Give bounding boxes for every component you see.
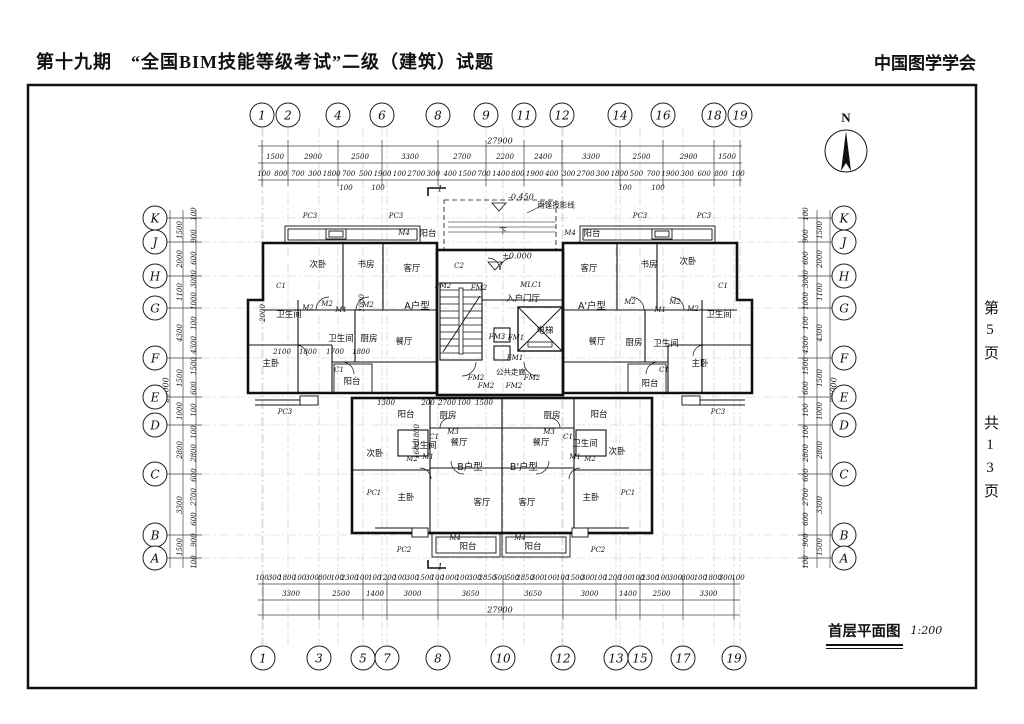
room-label: 次卧 — [309, 258, 326, 270]
component-tag-M4: M4 — [398, 229, 410, 237]
dimension-interior: 1500 — [475, 399, 493, 407]
dimension-bottom-minor: 500 — [493, 574, 506, 582]
grid-bubble-bottom-3: 3 — [307, 646, 332, 671]
dimension-left-major: 4300 — [176, 324, 184, 342]
grid-bubble-top-14: 14 — [608, 103, 633, 128]
room-label: 餐厅 — [395, 335, 412, 347]
dimension-top-minor: 1900 — [661, 170, 679, 178]
component-tag-C2: C2 — [454, 262, 464, 270]
dimension-left-major: 1500 — [176, 369, 184, 387]
component-tag-M3: M3 — [543, 428, 555, 436]
dimension-bottom-major: 1400 — [366, 590, 384, 598]
dimension-bottom-minor: 300 — [305, 574, 318, 582]
room-label: 客厅 — [403, 262, 420, 274]
component-tag-M2: M2 — [321, 300, 333, 308]
dimension-bottom-minor: 100 — [393, 574, 406, 582]
grid-bubble-right-A: A — [832, 546, 857, 571]
dimension-top-major: 2900 — [304, 153, 322, 161]
component-tag-PC3: PC3 — [389, 212, 404, 220]
north-arrow-icon — [825, 130, 867, 172]
dimension-bottom-minor: 800 — [681, 574, 694, 582]
dimension-right-major: 2000 — [816, 250, 824, 268]
dimension-bottom-minor: 300 — [669, 574, 682, 582]
dimension-top-minor: 2700 — [407, 170, 425, 178]
grid-bubble-bottom-15: 15 — [628, 646, 653, 671]
dimension-right-minor: 2700 — [802, 488, 810, 506]
title-block: 首层平面图 1:200 — [826, 620, 942, 646]
component-tag-PC1: PC1 — [367, 489, 382, 497]
component-tag-C1: C1 — [563, 433, 573, 441]
dimension-left-minor: 2800 — [190, 444, 198, 462]
dimension-interior: 1300 — [377, 399, 395, 407]
stairs-icon — [440, 283, 482, 360]
grid-bubble-left-A: A — [143, 546, 168, 571]
dimension-interior: 1800 — [352, 348, 370, 356]
component-tag-PC1: PC1 — [621, 489, 636, 497]
grid-bubble-left-D: D — [143, 413, 168, 438]
dimension-left-minor: 3000 — [190, 270, 198, 288]
dimension-top-minor: 1800 — [323, 170, 341, 178]
grid-bubble-left-K: K — [143, 206, 168, 231]
dimension-right-major: 1500 — [816, 369, 824, 387]
room-label: 客厅 — [473, 496, 490, 508]
dimension-left-minor: 600 — [190, 251, 198, 264]
dimension-bottom-minor: 300 — [581, 574, 594, 582]
dimension-top-minor: 700 — [477, 170, 490, 178]
room-label: 入户门厅 — [506, 292, 540, 304]
component-tag-M3: M3 — [447, 428, 459, 436]
dimension-bottom-minor: 100 — [456, 574, 469, 582]
component-tag-M2: M2 — [624, 298, 636, 306]
grid-bubble-bottom-12: 12 — [551, 646, 576, 671]
dimension-right-minor: 600 — [802, 512, 810, 525]
dimension-top-minor: 400 — [444, 170, 457, 178]
dimension-bottom-major: 3650 — [524, 590, 542, 598]
grid-bubble-top-2: 2 — [276, 103, 301, 128]
dimension-top-major: 3300 — [582, 153, 600, 161]
room-label: 书房 — [357, 258, 374, 270]
level-mark: -0.450 — [508, 193, 534, 202]
room-label: 次卧 — [608, 445, 625, 457]
room-label: 阳台 — [397, 408, 414, 420]
dimension-top-minor: 700 — [291, 170, 304, 178]
component-tag-M1: M1 — [422, 453, 434, 461]
dimension-top-minor: 100 — [393, 170, 406, 178]
dimension-left-major: 1100 — [176, 283, 184, 301]
dimension-top-sub: 100 — [371, 184, 384, 192]
plan-title: 首层平面图 — [826, 620, 903, 646]
room-label: 阳台 — [343, 375, 360, 387]
dimension-bottom-minor: 100 — [619, 574, 632, 582]
component-tag-FM2: FM2 — [435, 282, 451, 290]
page-number-current: 第5页 — [980, 300, 1001, 367]
grid-bubble-right-D: D — [832, 413, 857, 438]
dimension-top-minor: 100 — [731, 170, 744, 178]
dimension-top-minor: 700 — [647, 170, 660, 178]
dimension-top-major: 2900 — [680, 153, 698, 161]
dimension-left-minor: 1500 — [190, 357, 198, 375]
dimension-right-minor: 600 — [802, 468, 810, 481]
component-tag-M2: M2 — [584, 455, 596, 463]
dimension-bottom-major: 3000 — [581, 590, 599, 598]
dimension-bottom-minor: 100 — [356, 574, 369, 582]
component-tag-FM2: FM2 — [478, 382, 494, 390]
dimension-top-minor: 600 — [697, 170, 710, 178]
room-label: 电梯 — [536, 324, 553, 336]
dimension-interior: 100 — [457, 399, 470, 407]
dimension-interior: 1700 — [326, 348, 344, 356]
dimension-right-minor: 900 — [802, 534, 810, 547]
grid-bubble-right-G: G — [832, 296, 857, 321]
component-tag-M2: M2 — [406, 455, 418, 463]
dimension-right-major: 1000 — [816, 402, 824, 420]
grid-bubble-bottom-5: 5 — [351, 646, 376, 671]
dimension-top-minor: 400 — [545, 170, 558, 178]
dimension-bottom-major: 3650 — [462, 590, 480, 598]
dimension-bottom-minor: 100 — [656, 574, 669, 582]
dimension-top-major: 2400 — [534, 153, 552, 161]
room-label: 主卧 — [397, 491, 414, 503]
component-tag-M4: M4 — [514, 534, 526, 542]
room-label: 主卧 — [262, 357, 279, 369]
grid-bubble-bottom-7: 7 — [375, 646, 400, 671]
dimension-bottom-minor: 100 — [255, 574, 268, 582]
room-label: 阳台 — [419, 227, 436, 239]
grid-bubble-right-J: J — [832, 230, 857, 255]
dimension-top-major: 2700 — [453, 153, 471, 161]
section-mark-number: 1 — [437, 563, 442, 572]
dimension-left-major: 2800 — [176, 441, 184, 459]
grid-bubble-bottom-13: 13 — [604, 646, 629, 671]
dimension-right-major: 3300 — [816, 496, 824, 514]
dimension-left-minor: 600 — [190, 512, 198, 525]
dimension-top-major: 2200 — [496, 153, 514, 161]
grid-bubble-top-11: 11 — [512, 103, 537, 128]
component-tag-C1: C1 — [718, 282, 728, 290]
dimension-right-minor: 900 — [802, 229, 810, 242]
component-tag-PC3: PC3 — [711, 408, 726, 416]
grid-bubble-top-1: 1 — [250, 103, 275, 128]
dimension-right-major: 1500 — [816, 538, 824, 556]
grid-bubble-bottom-8: 8 — [426, 646, 451, 671]
component-tag-C1: C1 — [429, 433, 439, 441]
component-tag-PC3: PC3 — [303, 212, 318, 220]
dimension-interior: 1800 — [299, 348, 317, 356]
room-label: 厨房 — [360, 332, 377, 344]
dimension-bottom-minor: 100 — [293, 574, 306, 582]
dimension-left-major: 1500 — [176, 221, 184, 239]
dimension-left-minor: 600 — [190, 381, 198, 394]
dimension-interior: 2100 — [273, 348, 291, 356]
grid-bubble-right-B: B — [832, 523, 857, 548]
room-label: 卫生间 — [572, 437, 598, 449]
grid-bubble-left-C: C — [143, 462, 168, 487]
dimension-top-minor: 300 — [427, 170, 440, 178]
dimension-left-major: 1000 — [176, 402, 184, 420]
grid-bubble-left-E: E — [143, 385, 168, 410]
component-tag-FM2: FM2 — [468, 374, 484, 382]
room-label: 主卧 — [691, 357, 708, 369]
unit-type-label: A户型 — [404, 298, 430, 312]
dimension-right-minor: 100 — [802, 555, 810, 568]
dimension-bottom-major: 2500 — [332, 590, 350, 598]
grid-bubble-right-C: C — [832, 462, 857, 487]
grid-bubble-right-H: H — [832, 264, 857, 289]
grid-bubble-bottom-10: 10 — [491, 646, 516, 671]
component-tag-M1: M1 — [335, 306, 347, 314]
component-tag-PC2: PC2 — [397, 546, 412, 554]
dimension-left-minor: 2700 — [190, 488, 198, 506]
grid-bubble-left-G: G — [143, 296, 168, 321]
dimension-right-major: 1100 — [816, 283, 824, 301]
grid-bubble-top-4: 4 — [326, 103, 351, 128]
dimension-interior: 200 — [421, 399, 434, 407]
component-tag-M1: M1 — [654, 306, 666, 314]
room-label: 阳台 — [524, 540, 541, 552]
plan-scale: 1:200 — [911, 620, 943, 637]
component-tag-FM2: FM2 — [506, 382, 522, 390]
dimension-left-minor: 900 — [190, 534, 198, 547]
grid-bubble-left-F: F — [143, 346, 168, 371]
grid-bubble-left-J: J — [143, 230, 168, 255]
dimension-left-minor: 100 — [190, 316, 198, 329]
grid-bubble-top-19: 19 — [728, 103, 753, 128]
dimension-interior: 2700 — [438, 399, 456, 407]
dimension-interior: 2000 — [259, 304, 267, 322]
unit-type-label: B户型 — [457, 459, 483, 473]
room-label: 卫生间 — [328, 332, 354, 344]
grid-bubble-top-6: 6 — [370, 103, 395, 128]
dimension-top_total: 27900 — [487, 137, 512, 146]
dimension-top-minor: 1900 — [526, 170, 544, 178]
component-tag-M4: M4 — [449, 534, 461, 542]
grid-bubble-left-H: H — [143, 264, 168, 289]
dimension-top-minor: 300 — [681, 170, 694, 178]
room-label: 卫生间 — [276, 308, 302, 320]
room-label: 餐厅 — [588, 335, 605, 347]
dimension-top-sub: 100 — [339, 184, 352, 192]
dimension-right-major: 2800 — [816, 441, 824, 459]
exam-sheet-page: 第十九期 “全国BIM技能等级考试”二级（建筑）试题 中国图学学会 — [0, 0, 1024, 724]
dimension-left-major: 1500 — [176, 538, 184, 556]
dimension-top-minor: 300 — [562, 170, 575, 178]
room-label: 餐厅 — [450, 436, 467, 448]
dimension-bottom-minor: 800 — [318, 574, 331, 582]
exterior-walls — [248, 243, 752, 533]
section-mark-number: 1 — [437, 185, 442, 194]
dimension-right-minor: 100 — [802, 403, 810, 416]
dimension-bottom-minor: 100 — [731, 574, 744, 582]
dimension-left-minor: 1000 — [190, 292, 198, 310]
component-tag-FM1: FM1 — [508, 334, 524, 342]
dimension-right-minor: 600 — [802, 251, 810, 264]
dimension-top-minor: 500 — [359, 170, 372, 178]
dimension-right-minor: 1500 — [802, 357, 810, 375]
room-label: 客厅 — [518, 496, 535, 508]
grid-bubble-right-K: K — [832, 206, 857, 231]
component-tag-C1: C1 — [276, 282, 286, 290]
component-tag-FM2: FM2 — [524, 374, 540, 382]
component-tag-C1: C1 — [334, 366, 344, 374]
dimension-left-major: 3300 — [176, 496, 184, 514]
dimension-top-minor: 1500 — [458, 170, 476, 178]
dimension-right-minor: 100 — [802, 207, 810, 220]
component-tag-M2: M2 — [302, 304, 314, 312]
component-tag-M1: M1 — [569, 453, 581, 461]
dimension-right-minor: 4300 — [802, 336, 810, 354]
dimension-top-minor: 100 — [257, 170, 270, 178]
dimension-bottom-minor: 100 — [543, 574, 556, 582]
room-label: 卫生间 — [653, 337, 679, 349]
dimension-top-major: 2500 — [633, 153, 651, 161]
dimension-top-major: 1500 — [266, 153, 284, 161]
page-number-total: 共13页 — [980, 415, 1001, 505]
dimension-bottom-major: 2500 — [653, 590, 671, 598]
dimension-top-minor: 1400 — [492, 170, 510, 178]
room-label: 厨房 — [543, 409, 560, 421]
component-tag-PC2: PC2 — [591, 546, 606, 554]
room-label: 阳台 — [590, 408, 607, 420]
dimension-top-minor: 800 — [714, 170, 727, 178]
dimension-top-minor: 800 — [511, 170, 524, 178]
component-tag-FM2: FM2 — [471, 284, 487, 292]
component-tag-C1: C1 — [659, 366, 669, 374]
dimension-right-major: 4300 — [816, 324, 824, 342]
dimension-bottom-major: 3000 — [404, 590, 422, 598]
dimension-bottom-major: 1400 — [619, 590, 637, 598]
dimension-bottom-minor: 300 — [531, 574, 544, 582]
annotation: 下 — [499, 226, 507, 237]
grid-bubble-top-8: 8 — [426, 103, 451, 128]
dimension-bottom_total: 27900 — [487, 606, 512, 615]
room-label: 客厅 — [580, 262, 597, 274]
dimension-right-minor: 100 — [802, 425, 810, 438]
component-tag-PC3: PC3 — [633, 212, 648, 220]
dimension-bottom-major: 3300 — [282, 590, 300, 598]
component-tag-M2: M2 — [362, 301, 374, 309]
room-label: 书房 — [640, 258, 657, 270]
dimension-bottom-minor: 300 — [719, 574, 732, 582]
balcony-rails — [255, 226, 745, 557]
dimension-top-major: 1500 — [718, 153, 736, 161]
dimension-top-minor: 500 — [630, 170, 643, 178]
partition-walls — [248, 243, 752, 533]
component-tag-FM3: FM3 — [489, 333, 505, 341]
grid-bubble-top-12: 12 — [550, 103, 575, 128]
dimension-right-minor: 2800 — [802, 444, 810, 462]
room-label: 卫生间 — [706, 308, 732, 320]
component-tag-MLC1: MLC1 — [520, 281, 542, 289]
dimension-top-major: 3300 — [401, 153, 419, 161]
annotation: 雨篷投影线 — [537, 200, 575, 211]
dimension-right-minor: 1000 — [802, 292, 810, 310]
grid-bubble-bottom-17: 17 — [671, 646, 696, 671]
dimension-left-minor: 100 — [190, 403, 198, 416]
dimension-top-major: 2500 — [351, 153, 369, 161]
room-label: 阳台 — [641, 377, 658, 389]
grid-bubble-bottom-1: 1 — [251, 646, 276, 671]
component-tag-PC3: PC3 — [278, 408, 293, 416]
room-label: 阳台 — [459, 540, 476, 552]
component-tag-M4: M4 — [564, 229, 576, 237]
grid-bubble-right-F: F — [832, 346, 857, 371]
level-mark: ±0.000 — [502, 252, 532, 261]
dimension-top-minor: 1800 — [611, 170, 629, 178]
dimension-left-minor: 4300 — [190, 336, 198, 354]
dimension-right-minor: 100 — [802, 316, 810, 329]
dimension-top-minor: 700 — [342, 170, 355, 178]
dimension-top-sub: 100 — [618, 184, 631, 192]
unit-type-label: A'户型 — [578, 298, 606, 312]
dimension-top-minor: 300 — [308, 170, 321, 178]
room-label: 主卧 — [582, 491, 599, 503]
dimension-top-minor: 2700 — [577, 170, 595, 178]
room-label: 厨房 — [625, 336, 642, 348]
dimension-bottom-major: 3300 — [700, 590, 718, 598]
component-tag-FM1: FM1 — [507, 354, 523, 362]
grid-bubble-right-E: E — [832, 385, 857, 410]
grid-bubble-bottom-19: 19 — [722, 646, 747, 671]
unit-type-label: B'户型 — [510, 459, 538, 473]
dimension-top-sub: 100 — [651, 184, 664, 192]
dimension-right-minor: 600 — [802, 381, 810, 394]
grid-bubble-top-9: 9 — [474, 103, 499, 128]
component-tag-M2: M2 — [669, 298, 681, 306]
dimension-left-minor: 600 — [190, 468, 198, 481]
annotation: 公共走廊 — [496, 367, 526, 378]
grid-bubble-top-16: 16 — [651, 103, 676, 128]
dimension-right-minor: 3000 — [802, 270, 810, 288]
room-label: 餐厅 — [532, 436, 549, 448]
dimension-top-minor: 1900 — [374, 170, 392, 178]
north-label: N — [841, 110, 850, 126]
dimension-left-minor: 900 — [190, 229, 198, 242]
dimension-top-minor: 300 — [596, 170, 609, 178]
component-tag-PC3: PC3 — [697, 212, 712, 220]
dimension-left-minor: 100 — [190, 207, 198, 220]
dimension-left-minor: 100 — [190, 555, 198, 568]
room-label: 厨房 — [439, 409, 456, 421]
room-label: 次卧 — [366, 447, 383, 459]
dimension-top-minor: 800 — [274, 170, 287, 178]
grid-bubble-left-B: B — [143, 523, 168, 548]
room-label: 阳台 — [583, 227, 600, 239]
dimension-left-major: 2000 — [176, 250, 184, 268]
grid-bubble-top-18: 18 — [702, 103, 727, 128]
dimension-right-major: 1500 — [816, 221, 824, 239]
room-label: 次卧 — [679, 255, 696, 267]
component-tag-M2: M2 — [687, 305, 699, 313]
dimension-left-minor: 100 — [190, 425, 198, 438]
